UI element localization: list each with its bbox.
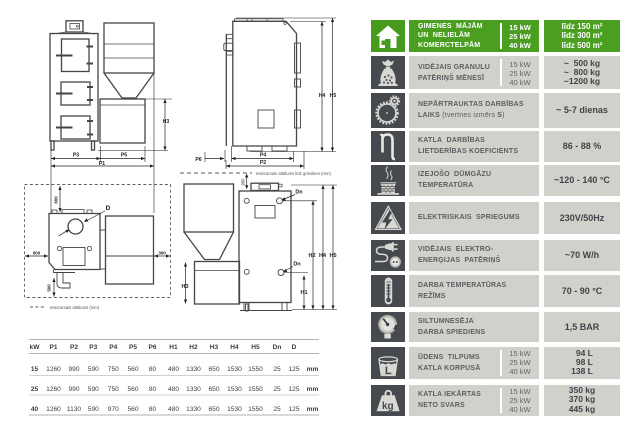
svg-text:kg: kg [382,401,394,412]
svg-text:1260: 1260 [46,406,61,413]
svg-text:650: 650 [208,366,219,373]
svg-text:H3: H3 [181,284,188,290]
svg-text:Ieteicamais attālums līdz grie: Ieteicamais attālums līdz griestiem (mm) [256,171,332,176]
svg-text:590: 590 [88,406,99,413]
svg-text:125: 125 [288,366,299,373]
svg-text:H4: H4 [319,253,327,259]
svg-text:mm: mm [307,386,319,393]
svg-text:1550: 1550 [248,406,263,413]
svg-text:L: L [385,365,392,377]
svg-text:590: 590 [88,366,99,373]
svg-text:990: 990 [68,366,79,373]
svg-text:1550: 1550 [248,386,263,393]
svg-text:D: D [292,344,297,351]
svg-text:H1: H1 [300,290,307,296]
svg-text:Dn: Dn [295,190,303,196]
svg-text:750: 750 [108,366,119,373]
svg-text:125: 125 [288,386,299,393]
svg-text:1530: 1530 [227,406,242,413]
svg-text:H5: H5 [330,93,337,99]
svg-text:80: 80 [149,366,157,373]
svg-text:560: 560 [127,386,138,393]
svg-text:25: 25 [273,366,281,373]
svg-text:750: 750 [108,386,119,393]
svg-text:1330: 1330 [186,386,201,393]
svg-text:P4: P4 [109,344,117,351]
svg-text:1130: 1130 [67,406,82,413]
svg-text:P3: P3 [89,344,97,351]
svg-text:P6: P6 [195,157,201,163]
svg-text:Dn: Dn [293,262,301,268]
svg-text:80: 80 [149,386,157,393]
svg-text:1260: 1260 [46,386,61,393]
svg-text:560: 560 [127,366,138,373]
svg-text:P4: P4 [260,153,266,159]
svg-text:990: 990 [68,386,79,393]
svg-text:500: 500 [47,284,52,292]
svg-text:P3: P3 [73,153,79,159]
svg-text:25: 25 [273,386,281,393]
svg-text:mm: mm [307,366,319,373]
svg-text:D: D [106,205,111,212]
svg-text:40: 40 [31,406,39,413]
svg-text:P5: P5 [129,344,137,351]
svg-text:P1: P1 [49,344,57,351]
svg-text:1260: 1260 [46,366,61,373]
svg-text:H5: H5 [251,344,260,351]
svg-text:480: 480 [168,386,179,393]
svg-text:970: 970 [108,406,119,413]
svg-text:15: 15 [31,366,39,373]
svg-text:H3: H3 [210,344,219,351]
svg-text:H4: H4 [230,344,239,351]
svg-text:Dn: Dn [273,344,282,351]
svg-text:300: 300 [158,250,166,255]
svg-text:kW: kW [30,344,41,351]
svg-text:P6: P6 [148,344,156,351]
svg-text:650: 650 [208,406,219,413]
svg-text:1530: 1530 [227,366,242,373]
svg-text:1530: 1530 [227,386,242,393]
svg-text:25: 25 [273,406,281,413]
svg-text:P2: P2 [70,344,78,351]
svg-text:P2: P2 [260,160,266,166]
svg-text:480: 480 [168,366,179,373]
svg-text:H4: H4 [319,93,326,99]
svg-text:H3: H3 [163,119,170,125]
svg-text:P1: P1 [99,161,105,167]
svg-text:80: 80 [149,406,157,413]
svg-text:590: 590 [88,386,99,393]
svg-text:1330: 1330 [186,406,201,413]
svg-text:H5: H5 [329,253,336,259]
svg-text:Ieteicamais attālums (mm): Ieteicamais attālums (mm) [50,305,100,310]
svg-text:H1: H1 [169,344,178,351]
svg-text:H2: H2 [308,253,315,259]
svg-text:600: 600 [54,196,59,204]
svg-text:600: 600 [33,250,41,255]
svg-text:mm: mm [307,406,319,413]
svg-text:25: 25 [31,386,39,393]
svg-text:H2: H2 [189,344,198,351]
svg-text:560: 560 [127,406,138,413]
svg-text:1550: 1550 [248,366,263,373]
svg-text:P5: P5 [121,153,127,159]
svg-text:950: 950 [241,178,246,186]
svg-text:480: 480 [168,406,179,413]
svg-text:1330: 1330 [186,366,201,373]
svg-text:650: 650 [208,386,219,393]
svg-text:125: 125 [288,406,299,413]
